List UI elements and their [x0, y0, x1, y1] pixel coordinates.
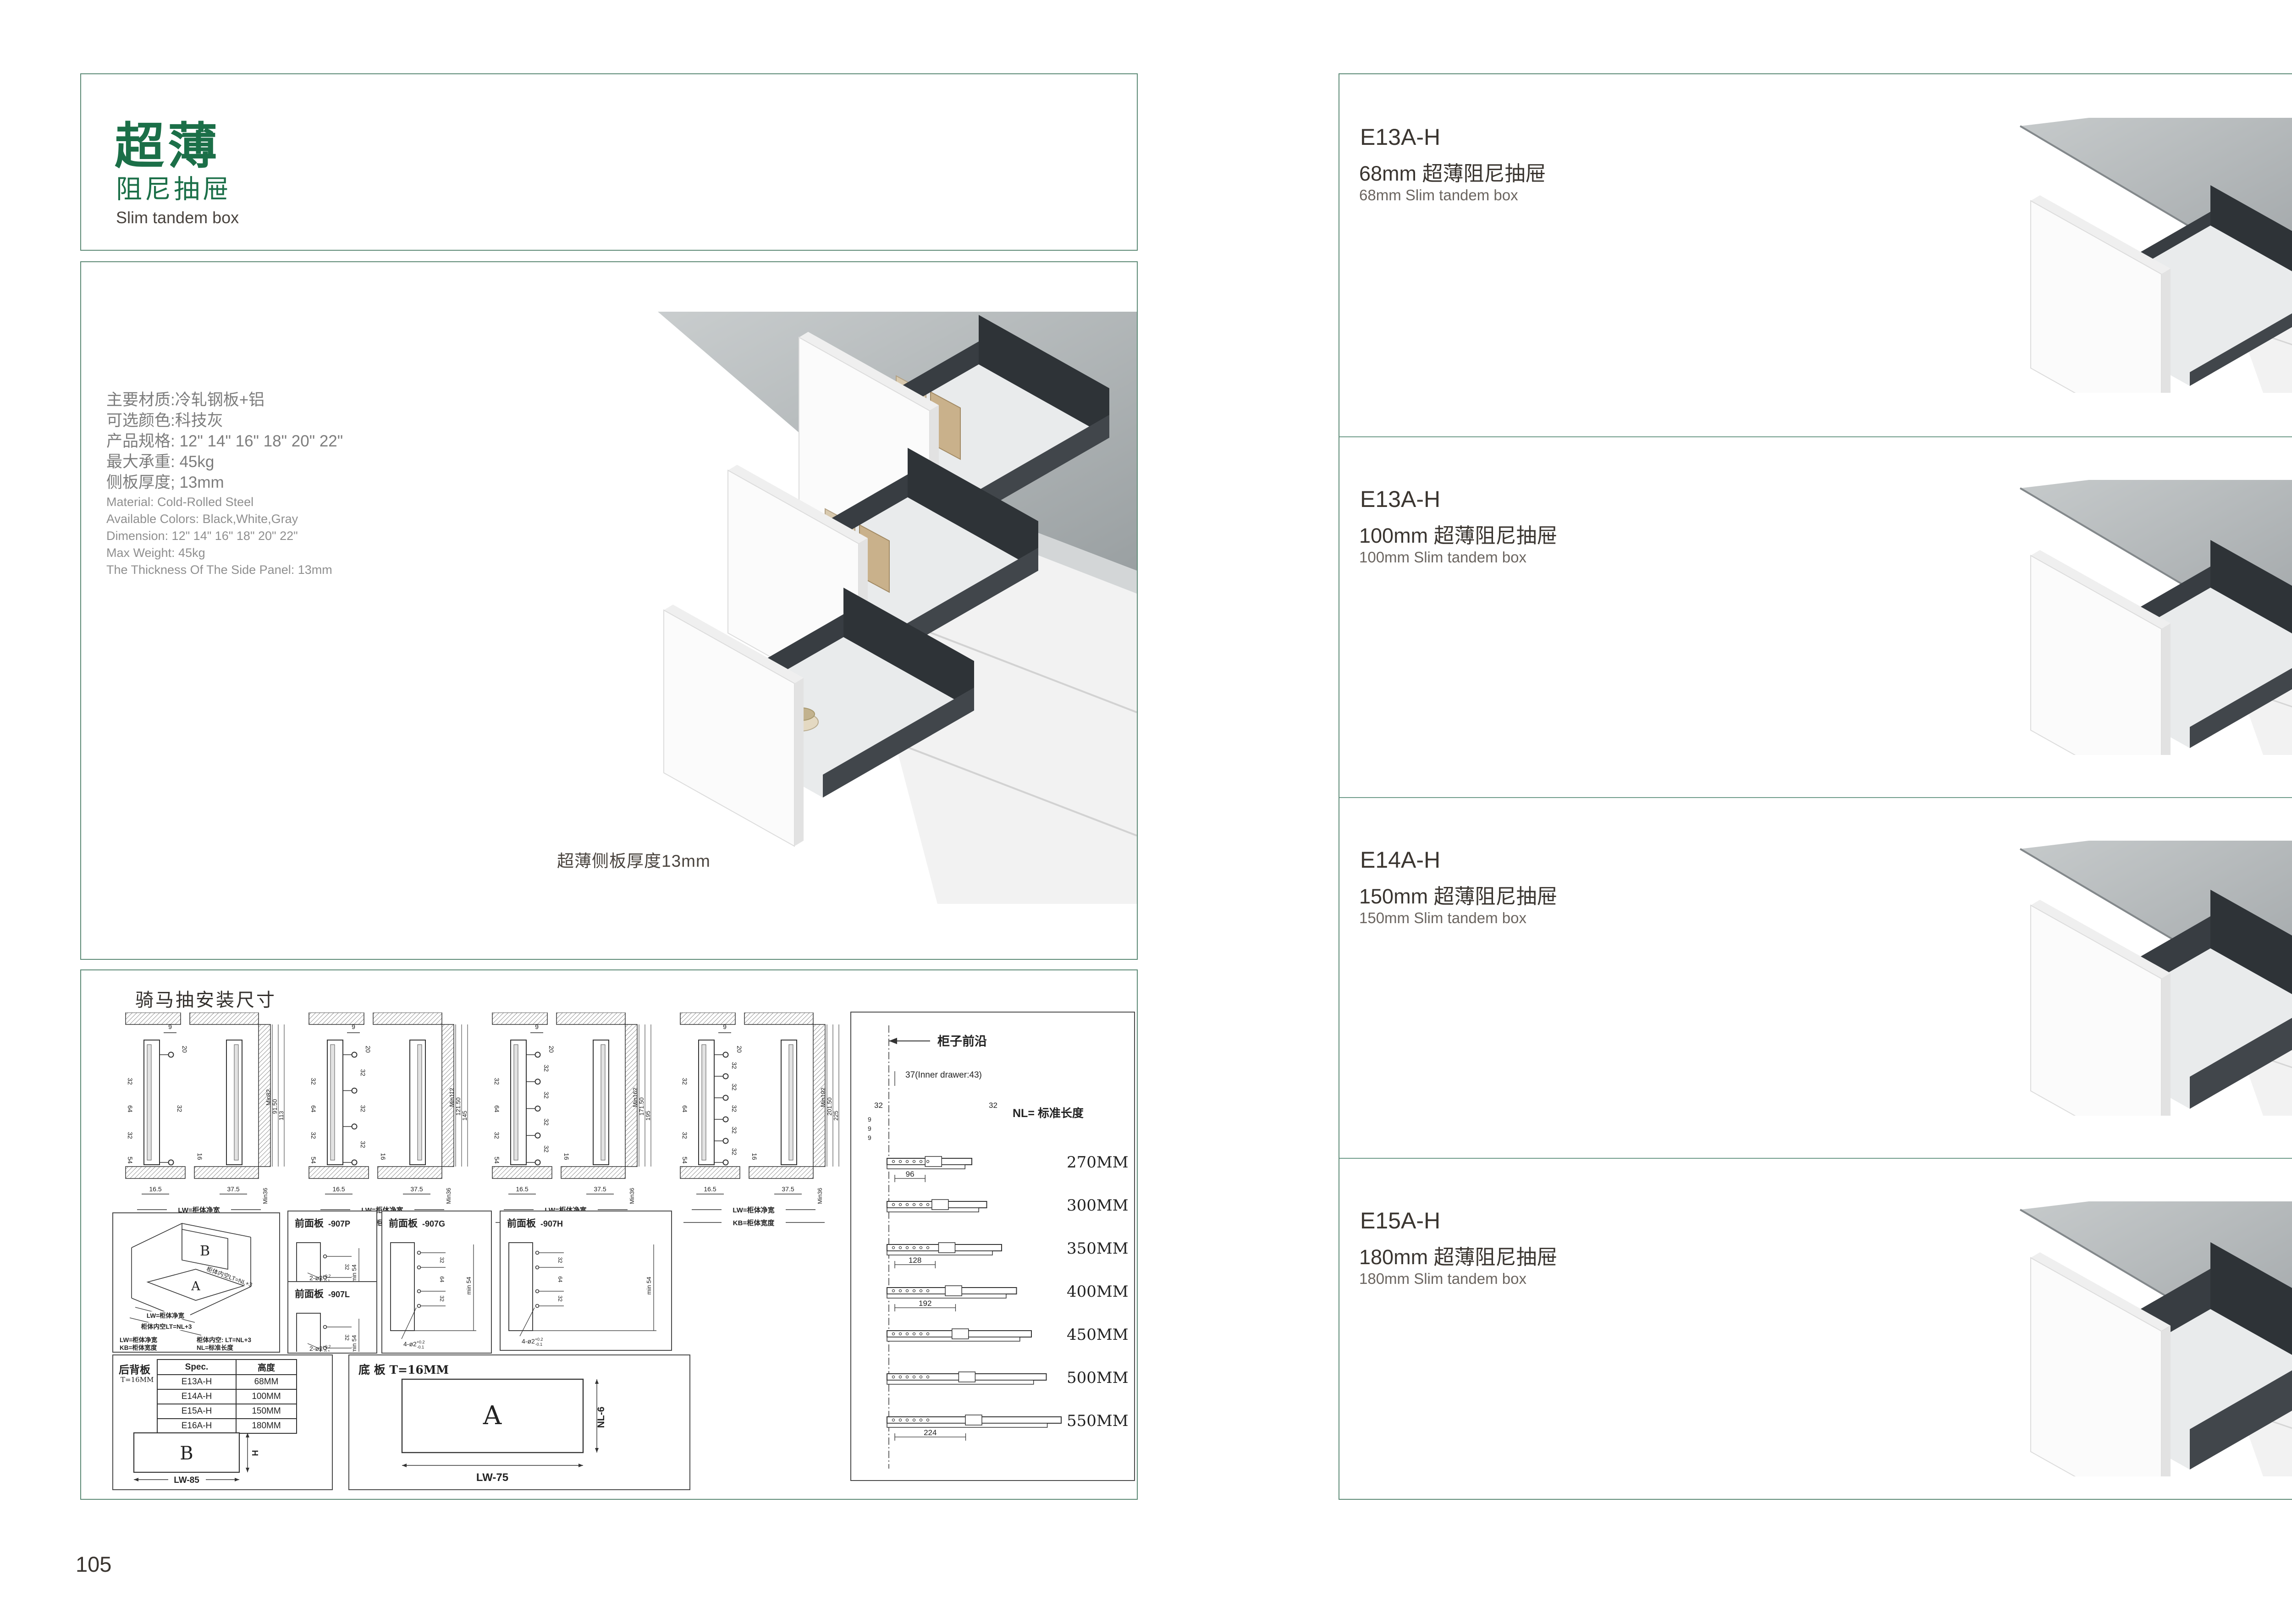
product-row-100mm: E13A-H 100mm 超薄阻尼抽屉 100mm Slim tandem bo… — [1339, 436, 2292, 797]
svg-text:LW=柜体净宽: LW=柜体净宽 — [733, 1206, 774, 1214]
spec-line: Dimension: 12" 14" 16" 18" 20" 22" — [106, 528, 332, 545]
svg-text:96: 96 — [906, 1170, 915, 1178]
svg-text:32: 32 — [874, 1101, 883, 1110]
bottom-panel-diagram: A NL-6 LW-75 — [349, 1374, 688, 1487]
back-panel-name: 后背板 — [119, 1361, 150, 1376]
svg-text:9: 9 — [868, 1125, 871, 1132]
svg-text:NL= 标准长度: NL= 标准长度 — [1013, 1107, 1084, 1120]
svg-text:37.5: 37.5 — [782, 1185, 794, 1193]
svg-text:32: 32 — [731, 1105, 738, 1112]
drawer-render-illustration — [1906, 480, 2292, 755]
svg-text:64: 64 — [127, 1105, 134, 1112]
svg-text:16: 16 — [563, 1153, 570, 1160]
svg-text:柜子前沿: 柜子前沿 — [937, 1034, 987, 1048]
svg-text:min 54: min 54 — [645, 1277, 652, 1294]
svg-text:171.50: 171.50 — [638, 1097, 645, 1116]
svg-text:32: 32 — [439, 1295, 445, 1302]
svg-text:B: B — [200, 1243, 210, 1259]
svg-text:Min192: Min192 — [820, 1088, 826, 1107]
product-title-cn: 150mm 超薄阻尼抽屉 — [1359, 880, 1558, 909]
product-render — [1906, 480, 2292, 755]
slide-length-label: 350MM — [1067, 1239, 1129, 1258]
svg-text:32: 32 — [557, 1257, 563, 1263]
svg-text:Min36: Min36 — [816, 1188, 823, 1204]
spec-line: Max Weight: 45kg — [106, 545, 332, 562]
product-title-en: 100mm Slim tandem box — [1359, 549, 1526, 566]
svg-text:224: 224 — [924, 1428, 937, 1437]
product-title-cn: 68mm 超薄阻尼抽屉 — [1359, 157, 1546, 187]
spec-line: 最大承重: 45kg — [106, 451, 343, 472]
spec-model: E13A-H — [157, 1375, 236, 1389]
svg-text:4-ø2+0.2-0.1: 4-ø2+0.2-0.1 — [403, 1340, 425, 1349]
svg-text:Min36: Min36 — [262, 1188, 269, 1204]
product-title-cn: 100mm 超薄阻尼抽屉 — [1359, 519, 1558, 549]
specs-en: Material: Cold-Rolled Steel Available Co… — [106, 494, 332, 578]
svg-text:32: 32 — [989, 1101, 997, 1110]
page-title-cn: 超薄 — [115, 106, 221, 178]
svg-text:32: 32 — [359, 1141, 367, 1148]
svg-text:64: 64 — [557, 1276, 563, 1283]
svg-text:32: 32 — [543, 1091, 550, 1099]
svg-text:32: 32 — [557, 1295, 563, 1302]
svg-text:Min36: Min36 — [628, 1188, 635, 1204]
svg-text:柜体内空LT=NL+3: 柜体内空LT=NL+3 — [141, 1323, 192, 1330]
spec-line: 侧板厚度; 13mm — [106, 472, 343, 493]
product-photo: 超薄侧板厚度13mm — [534, 312, 1137, 904]
svg-text:145: 145 — [461, 1111, 468, 1121]
svg-text:Min112: Min112 — [448, 1088, 455, 1107]
drawer-render-illustration — [1906, 841, 2292, 1116]
drawings-title: 骑马抽安装尺寸 — [135, 985, 276, 1012]
svg-text:32: 32 — [176, 1105, 183, 1112]
back-panel-thickness: T=16MM — [121, 1376, 154, 1384]
product-render — [1906, 118, 2292, 393]
svg-text:37.5: 37.5 — [410, 1185, 423, 1193]
svg-text:20: 20 — [736, 1046, 743, 1053]
svg-text:2-ø2+0.2-0.1: 2-ø2+0.2-0.1 — [309, 1344, 331, 1352]
product-model: E13A-H — [1360, 486, 1440, 512]
installation-drawings-box: 骑马抽安装尺寸 32 9 20 32 64 32 54 16 Min82 91.… — [80, 969, 1138, 1500]
svg-text:64: 64 — [493, 1105, 501, 1112]
svg-text:H: H — [250, 1450, 259, 1456]
front-panel-title: 前面板-907P — [288, 1211, 376, 1230]
svg-text:9: 9 — [868, 1134, 871, 1141]
catalog-spread: 超薄 阻尼抽屉 Slim tandem box 主要材质:冷轧钢板+铝 可选颜色… — [0, 0, 2292, 1624]
svg-text:32: 32 — [681, 1132, 689, 1139]
drawers-photo-illustration — [534, 312, 1137, 904]
front-panel-title: 前面板-907L — [288, 1282, 376, 1300]
svg-text:54: 54 — [493, 1156, 501, 1164]
product-row-180mm: E15A-H 180mm 超薄阻尼抽屉 180mm Slim tandem bo… — [1339, 1158, 2292, 1519]
product-row-68mm: E13A-H 68mm 超薄阻尼抽屉 68mm Slim tandem box — [1339, 74, 2292, 435]
svg-text:min 54: min 54 — [351, 1335, 358, 1352]
svg-text:Min36: Min36 — [445, 1188, 452, 1204]
back-panel-box: 后背板 T=16MM Spec. 高度 E13A-H 68MM E14A-H 1… — [112, 1354, 333, 1490]
svg-text:128: 128 — [909, 1256, 921, 1265]
svg-text:32: 32 — [731, 1062, 738, 1069]
cross-section-68mm: 32 9 20 32 64 32 54 16 Min82 91.50 113 1… — [110, 1013, 288, 1229]
svg-text:A: A — [483, 1401, 502, 1431]
product-title-en: 68mm Slim tandem box — [1359, 187, 1518, 204]
svg-text:91.50: 91.50 — [271, 1099, 278, 1114]
front-panel-907h-box: 前面板-907H 32 64 32 min 54 4-ø2+0.2-0.1 — [500, 1211, 672, 1351]
spec-height: 150MM — [236, 1404, 297, 1419]
svg-text:16.5: 16.5 — [516, 1185, 528, 1193]
spec-line: 可选颜色:科技灰 — [106, 410, 343, 431]
cross-section-100mm: 323232 9 20 32 64 32 54 16 Min112 121.50… — [293, 1013, 472, 1229]
svg-text:32: 32 — [543, 1118, 550, 1126]
spec-line: 产品规格: 12" 14" 16" 18" 20" 22" — [106, 431, 343, 451]
svg-text:LW-75: LW-75 — [476, 1471, 508, 1484]
svg-text:37.5: 37.5 — [227, 1185, 239, 1193]
product-model: E14A-H — [1360, 847, 1440, 873]
spec-table-header: 高度 — [236, 1360, 297, 1375]
spec-line: The Thickness Of The Side Panel: 13mm — [106, 562, 332, 578]
slide-length-label: 300MM — [1067, 1196, 1129, 1215]
svg-text:min 54: min 54 — [465, 1277, 472, 1294]
spec-model: E14A-H — [157, 1389, 236, 1404]
back-panel-diagram: B H LW-85 — [116, 1431, 329, 1487]
spec-height: 100MM — [236, 1389, 297, 1404]
spec-model: E15A-H — [157, 1404, 236, 1419]
svg-text:54: 54 — [681, 1156, 689, 1164]
svg-text:37(Inner drawer:43): 37(Inner drawer:43) — [905, 1070, 982, 1080]
bottom-panel-box: 底 板 T=16MM A NL-6 LW-75 — [348, 1354, 690, 1490]
svg-text:LW=柜体净宽: LW=柜体净宽 — [120, 1336, 158, 1343]
svg-text:54: 54 — [127, 1156, 134, 1164]
svg-text:B: B — [180, 1443, 193, 1464]
svg-text:20: 20 — [548, 1046, 555, 1053]
svg-text:9: 9 — [868, 1116, 871, 1123]
svg-text:54: 54 — [310, 1156, 317, 1164]
front-panel-907g-box: 前面板-907G 32 64 32 min 54 4-ø2+0.2-0.1 — [381, 1211, 492, 1354]
svg-text:4-ø2+0.2-0.1: 4-ø2+0.2-0.1 — [522, 1337, 543, 1347]
front-panel-907p-907l-box: 前面板-907P 32 min 54 2-ø2+0.2-0.1 前面板-907L… — [287, 1211, 377, 1354]
spec-height: 68MM — [236, 1375, 297, 1389]
spec-line: 主要材质:冷轧钢板+铝 — [106, 390, 343, 410]
cross-section-150mm: 32323232 9 20 32 64 32 54 16 Min162 171.… — [476, 1013, 655, 1229]
svg-text:16: 16 — [380, 1153, 387, 1160]
product-row-150mm: E14A-H 150mm 超薄阻尼抽屉 150mm Slim tandem bo… — [1339, 797, 2292, 1158]
svg-text:NL=标准长度: NL=标准长度 — [197, 1344, 233, 1351]
drawer-render-illustration — [1906, 1201, 2292, 1476]
svg-text:32: 32 — [359, 1069, 367, 1076]
svg-text:32: 32 — [681, 1078, 689, 1085]
svg-text:32: 32 — [344, 1334, 350, 1341]
svg-text:32: 32 — [493, 1078, 501, 1085]
drawer-render-illustration — [1906, 118, 2292, 393]
spec-table: Spec. 高度 E13A-H 68MM E14A-H 100MM E15A-H… — [157, 1359, 297, 1434]
svg-text:9: 9 — [535, 1023, 539, 1030]
product-render — [1906, 1201, 2292, 1476]
product-model: E13A-H — [1360, 124, 1440, 150]
svg-text:A: A — [191, 1279, 200, 1294]
svg-text:32: 32 — [344, 1264, 350, 1270]
svg-text:113: 113 — [278, 1111, 285, 1121]
slide-length-label: 450MM — [1067, 1326, 1129, 1344]
product-title-en: 180mm Slim tandem box — [1359, 1270, 1526, 1288]
product-title-en: 150mm Slim tandem box — [1359, 909, 1526, 927]
svg-text:16.5: 16.5 — [149, 1185, 161, 1193]
svg-text:32: 32 — [310, 1078, 317, 1085]
svg-text:9: 9 — [168, 1023, 172, 1030]
svg-text:201.50: 201.50 — [826, 1097, 833, 1116]
svg-text:195: 195 — [645, 1111, 651, 1121]
slide-length-label: 550MM — [1067, 1412, 1129, 1430]
svg-text:32: 32 — [543, 1065, 550, 1072]
cross-section-180mm: 3232323232 9 20 32 64 32 54 16 Min192 20… — [664, 1013, 843, 1229]
spec-line: Material: Cold-Rolled Steel — [106, 494, 332, 511]
front-panel-title: 前面板-907G — [382, 1211, 491, 1230]
svg-text:32: 32 — [359, 1105, 367, 1112]
svg-text:16.5: 16.5 — [332, 1185, 345, 1193]
left-title-box: 超薄 阻尼抽屉 Slim tandem box — [80, 73, 1138, 251]
svg-text:KB=柜体宽度: KB=柜体宽度 — [120, 1344, 157, 1351]
svg-text:9: 9 — [723, 1023, 727, 1030]
slide-length-label: 400MM — [1067, 1283, 1129, 1301]
spec-line: Available Colors: Black,White,Gray — [106, 511, 332, 528]
page-subtitle-cn: 阻尼抽屉 — [116, 168, 231, 206]
svg-text:16.5: 16.5 — [704, 1185, 716, 1193]
front-panel-title: 前面板-907H — [501, 1211, 671, 1230]
svg-text:32: 32 — [310, 1132, 317, 1139]
svg-text:37.5: 37.5 — [594, 1185, 606, 1193]
spec-table-header: Spec. — [157, 1360, 236, 1375]
svg-text:32: 32 — [493, 1132, 501, 1139]
left-main-box: 主要材质:冷轧钢板+铝 可选颜色:科技灰 产品规格: 12" 14" 16" 1… — [80, 261, 1138, 960]
svg-text:32: 32 — [127, 1132, 134, 1139]
right-products-box: E13A-H 68mm 超薄阻尼抽屉 68mm Slim tandem box … — [1339, 73, 2292, 1500]
svg-text:64: 64 — [310, 1105, 317, 1112]
svg-text:32: 32 — [439, 1257, 445, 1263]
svg-text:32: 32 — [731, 1148, 738, 1156]
svg-text:32: 32 — [127, 1078, 134, 1085]
svg-text:64: 64 — [681, 1105, 689, 1112]
svg-text:LW-85: LW-85 — [174, 1475, 199, 1485]
product-title-cn: 180mm 超薄阻尼抽屉 — [1359, 1240, 1558, 1270]
isometric-diagram-box: B A 柜体内空LT=NL+3 LW=柜体净宽 柜体内空LT=NL+3 LW=柜… — [112, 1212, 280, 1353]
svg-text:NL-6: NL-6 — [596, 1407, 606, 1428]
product-model: E15A-H — [1360, 1207, 1440, 1234]
svg-text:32: 32 — [731, 1127, 738, 1134]
svg-text:16: 16 — [196, 1153, 204, 1160]
svg-text:121.50: 121.50 — [455, 1097, 462, 1116]
svg-text:20: 20 — [181, 1046, 188, 1053]
slide-length-label: 270MM — [1067, 1153, 1129, 1172]
svg-text:KB=柜体宽度: KB=柜体宽度 — [733, 1219, 775, 1227]
svg-text:225: 225 — [832, 1111, 839, 1121]
svg-text:LW=柜体净宽: LW=柜体净宽 — [147, 1312, 185, 1319]
page-number-left: 105 — [76, 1552, 111, 1577]
slide-length-panel: 柜子前沿 37(Inner drawer:43) 32 32 9 9 9 NL=… — [850, 1012, 1135, 1481]
svg-text:9: 9 — [352, 1023, 355, 1030]
svg-text:柜体内空: LT=NL+3: 柜体内空: LT=NL+3 — [197, 1336, 252, 1343]
specs-cn: 主要材质:冷轧钢板+铝 可选颜色:科技灰 产品规格: 12" 14" 16" 1… — [106, 390, 343, 493]
svg-text:32: 32 — [543, 1145, 550, 1153]
product-render — [1906, 841, 2292, 1116]
svg-text:Min82: Min82 — [265, 1089, 272, 1105]
svg-text:64: 64 — [439, 1276, 445, 1283]
svg-text:192: 192 — [919, 1299, 931, 1308]
svg-text:min 54: min 54 — [351, 1264, 358, 1282]
page-subtitle-en: Slim tandem box — [116, 208, 239, 227]
svg-text:32: 32 — [731, 1084, 738, 1091]
svg-text:16: 16 — [751, 1153, 758, 1160]
slide-length-label: 500MM — [1067, 1369, 1129, 1387]
svg-text:2-ø2+0.2-0.1: 2-ø2+0.2-0.1 — [309, 1274, 331, 1282]
svg-text:20: 20 — [364, 1046, 372, 1053]
photo-caption: 超薄侧板厚度13mm — [557, 847, 711, 872]
svg-text:Min162: Min162 — [632, 1088, 639, 1107]
